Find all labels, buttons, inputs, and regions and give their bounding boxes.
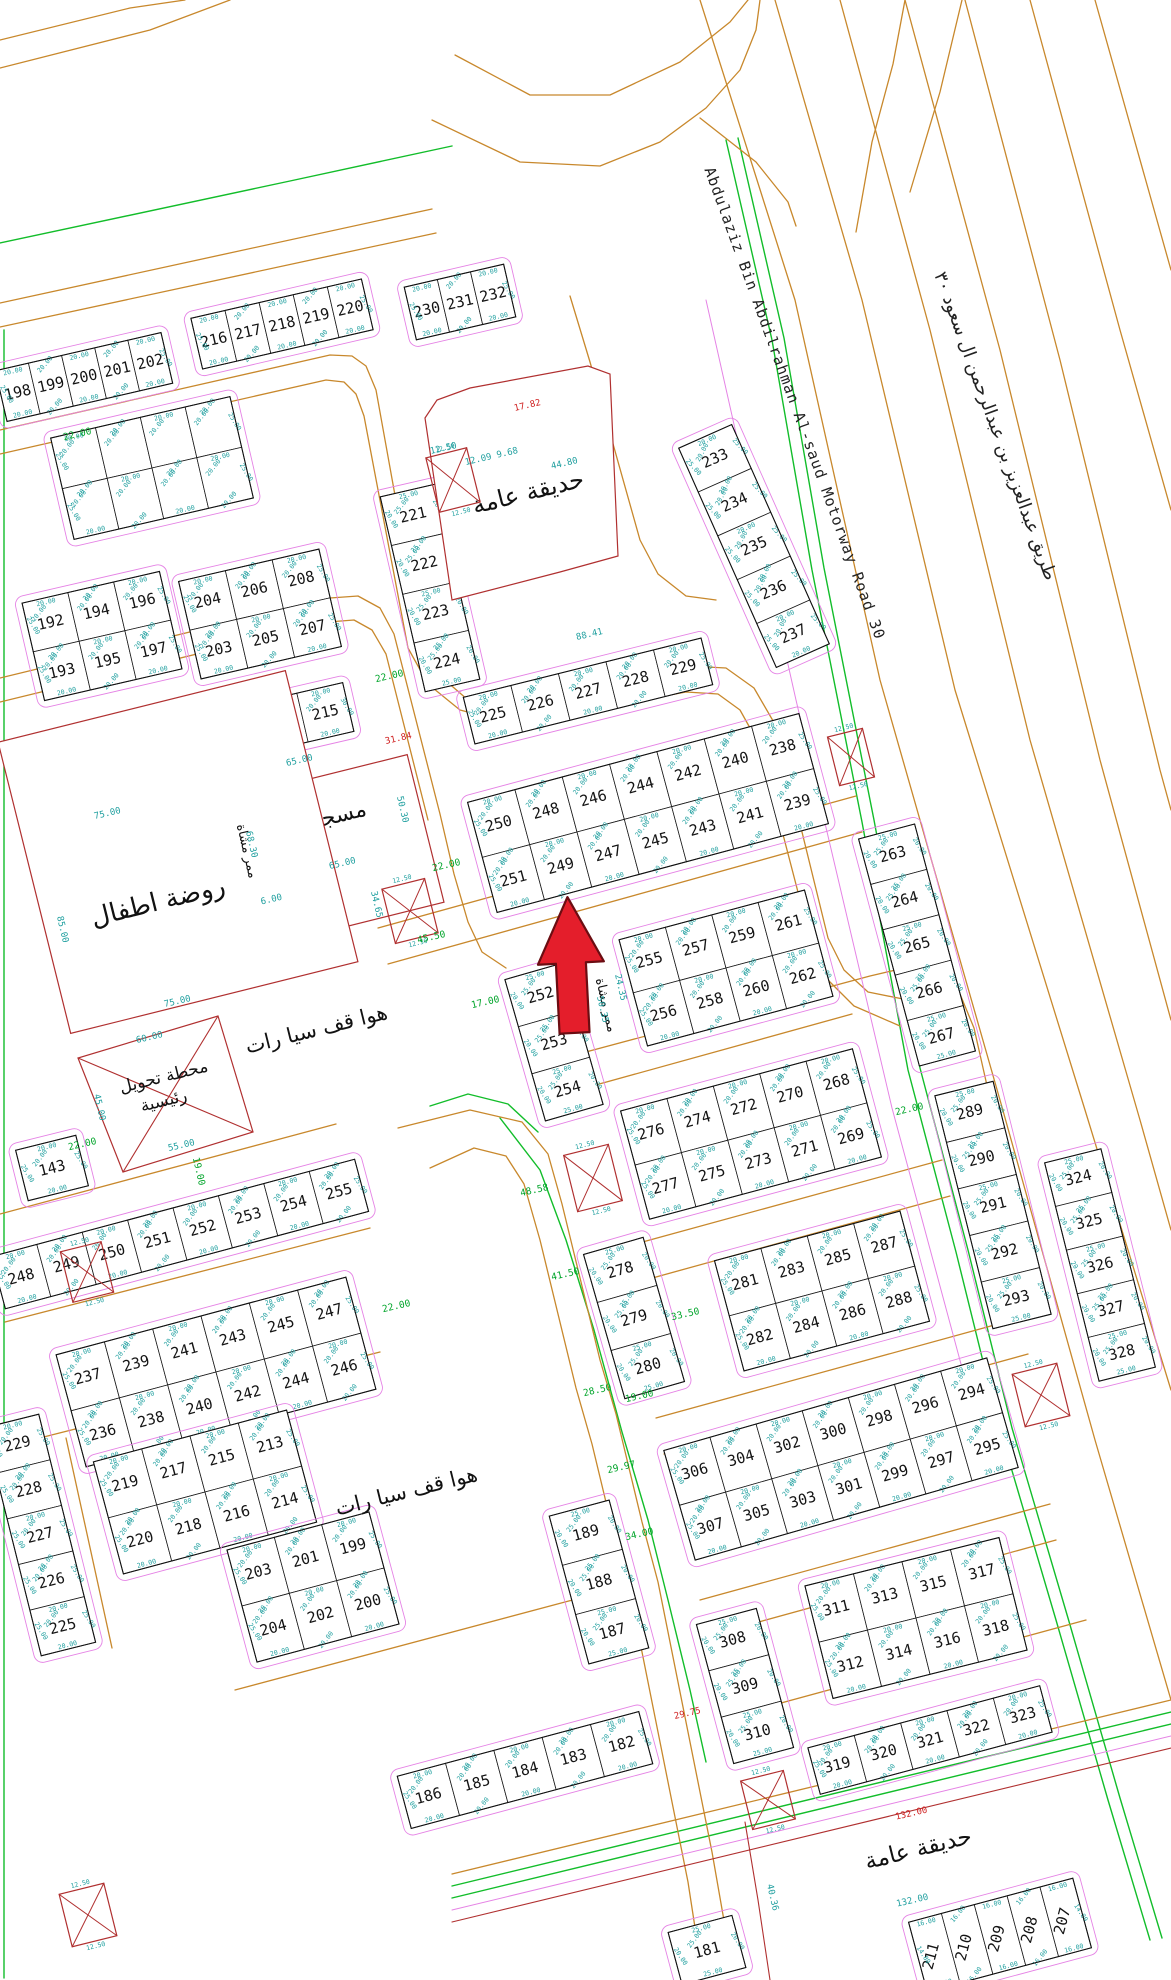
site-plan-svg: 23020.0020.0025.0023120.0020.0023220.002… bbox=[0, 0, 1171, 1980]
cadastral-plan-canvas: 23020.0020.0025.0023120.0020.0023220.002… bbox=[0, 0, 1171, 1980]
